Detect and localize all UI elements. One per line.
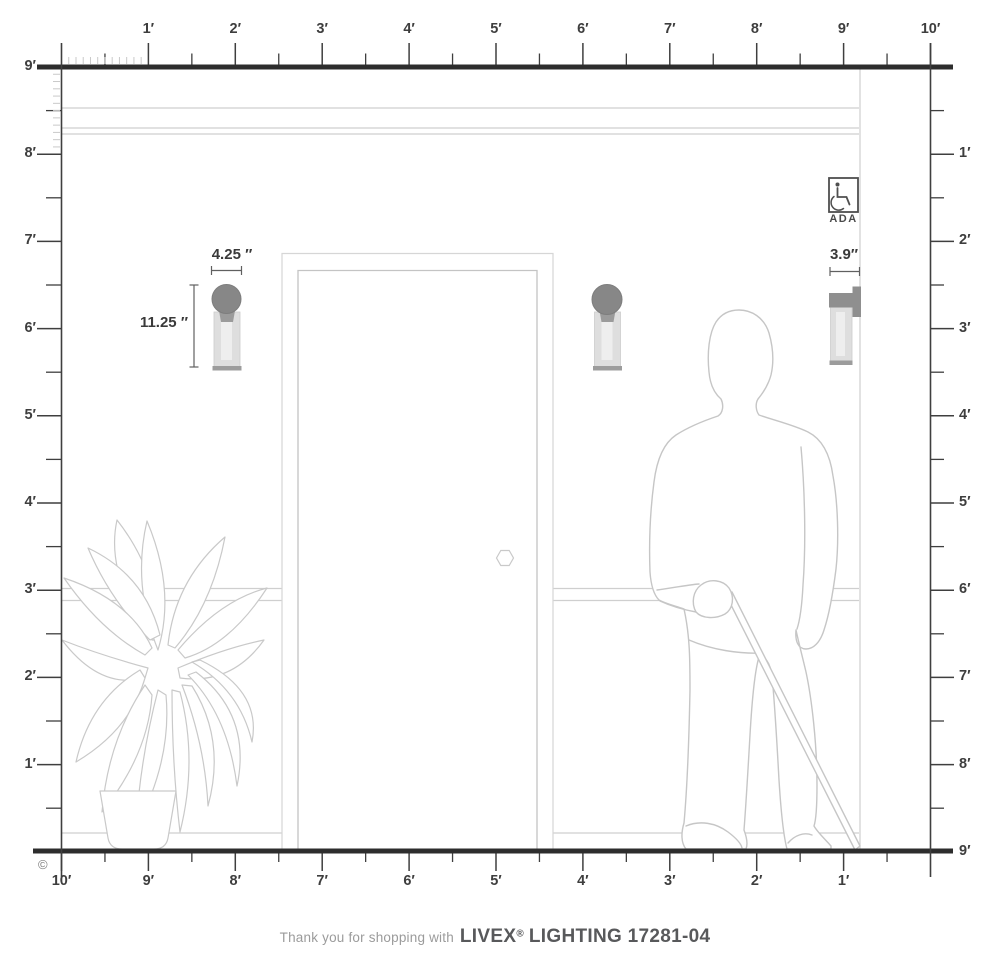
sconce-side-right: [829, 287, 861, 366]
door-knob: [497, 551, 514, 566]
bottom-ruler-label: 8′: [215, 873, 255, 889]
top-ruler-label: 5′: [476, 21, 516, 37]
top-ruler-label: 2′: [215, 21, 255, 37]
left-ruler-label: 6′: [0, 320, 36, 336]
ada-label: ADA: [813, 213, 874, 225]
caption: Thank you for shopping withLIVEX®LIGHTIN…: [0, 926, 990, 948]
ada-badge: [829, 178, 858, 212]
right-ruler-label: 5′: [959, 494, 990, 510]
plant-pot: [100, 791, 176, 849]
right-ruler-label: 2′: [959, 232, 990, 248]
model-number: LIGHTING 17281-04: [529, 926, 710, 947]
registered-mark-icon: ®: [516, 929, 524, 940]
left-ruler-label: 2′: [0, 668, 36, 684]
top-ruler-label: 1′: [128, 21, 168, 37]
caption-prefix: Thank you for shopping with: [280, 930, 454, 945]
scene: [0, 0, 990, 966]
sconce-front-left: [212, 285, 242, 371]
right-ruler-label: 6′: [959, 581, 990, 597]
sconce-bottom-cap: [830, 361, 853, 366]
bottom-ruler-label: 9′: [128, 873, 168, 889]
left-ruler-label: 1′: [0, 756, 36, 772]
depth-dimension-label: 3.9″: [804, 246, 884, 263]
person-hand-fist: [693, 581, 732, 618]
copyright-symbol: ©: [38, 857, 48, 872]
sconce-glass-highlight: [602, 317, 613, 360]
potted-plant: [62, 520, 267, 849]
left-ruler-label: 8′: [0, 145, 36, 161]
right-ruler-label: 8′: [959, 756, 990, 772]
width-dimension-label: 4.25 ″: [192, 246, 272, 263]
sconce-backplate: [212, 285, 241, 314]
elevation-diagram: 4.25 ″ 11.25 ″ 3.9″ ADA © Thank you for …: [0, 0, 990, 966]
bottom-ruler-label: 6′: [389, 873, 429, 889]
bottom-ruler-label: 1′: [824, 873, 864, 889]
person-silhouette: [650, 310, 860, 850]
person-outline: [650, 310, 838, 849]
bottom-ruler-label: 5′: [476, 873, 516, 889]
right-ruler-label: 4′: [959, 407, 990, 423]
right-ruler-label: 7′: [959, 668, 990, 684]
sconce-glass-highlight: [221, 317, 232, 360]
right-ruler-label: 3′: [959, 320, 990, 336]
top-ruler-label: 4′: [389, 21, 429, 37]
right-ruler-label: 1′: [959, 145, 990, 161]
door-frame-outer: [282, 254, 553, 851]
left-ruler-label: 4′: [0, 494, 36, 510]
sconce-front-middle: [592, 285, 622, 371]
bottom-ruler-label: 2′: [737, 873, 777, 889]
sconce-glass-highlight: [836, 312, 845, 356]
bottom-ruler-label: 4′: [563, 873, 603, 889]
sconce-bottom-cap: [213, 366, 242, 371]
sconce-top-arm: [829, 293, 854, 308]
sconce-wall-plate: [853, 287, 862, 318]
door: [282, 254, 553, 851]
left-ruler-label: 7′: [0, 232, 36, 248]
top-ruler-label: 6′: [563, 21, 603, 37]
left-ruler-label: 9′: [0, 58, 36, 74]
left-ruler-label: 3′: [0, 581, 36, 597]
sconce-bottom-cap: [593, 366, 622, 371]
top-ruler-label: 9′: [824, 21, 864, 37]
brand-name: LIVEX: [460, 926, 516, 947]
top-ruler-label: 3′: [302, 21, 342, 37]
height-dimension-label: 11.25 ″: [105, 314, 188, 331]
bottom-ruler-label: 7′: [302, 873, 342, 889]
left-ruler-label: 5′: [0, 407, 36, 423]
plant-leaf: [172, 690, 189, 832]
bottom-ruler-label: 3′: [650, 873, 690, 889]
top-ruler-label: 10′: [911, 21, 951, 37]
bottom-ruler-label: 10′: [42, 873, 82, 889]
top-ruler-label: 7′: [650, 21, 690, 37]
top-ruler-label: 8′: [737, 21, 777, 37]
right-ruler-label: 9′: [959, 843, 990, 859]
sconce-backplate: [592, 285, 622, 315]
